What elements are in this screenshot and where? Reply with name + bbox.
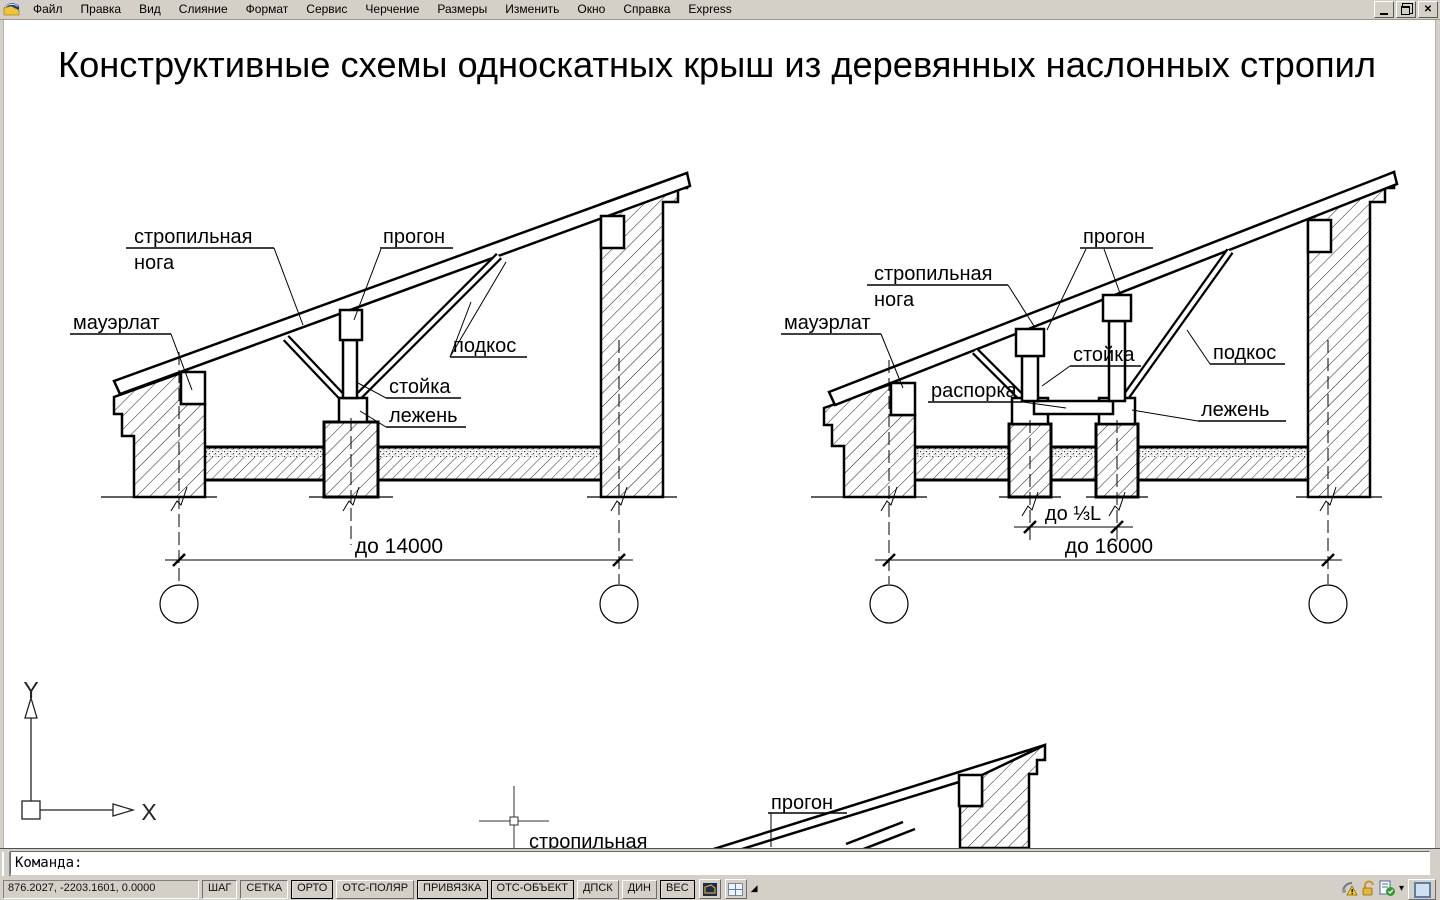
slab-insulation (205, 448, 601, 457)
label-post: стойка (389, 376, 451, 398)
clean-screen-button[interactable] (1408, 879, 1436, 900)
menu-view[interactable]: Вид (130, 0, 170, 19)
toggle-osnap[interactable]: ПРИВЯЗКА (417, 880, 487, 899)
label-purlin: прогон (383, 226, 445, 248)
label-purlin: прогон (1083, 226, 1145, 248)
restore-button[interactable] (1396, 1, 1416, 18)
coordinate-display[interactable]: 876.2027, -2203.1601, 0.0000 (3, 880, 199, 899)
grid-bubble (600, 585, 638, 623)
post (343, 340, 357, 398)
label-rafter-1: стропильная (874, 263, 993, 285)
menu-tools[interactable]: Сервис (297, 0, 356, 19)
post-spacing-dimension: до ⅓L (1014, 503, 1133, 533)
label-rafter-2: нога (134, 252, 175, 274)
toggle-dyn[interactable]: ДИН (622, 880, 657, 899)
spacer-bar (1034, 401, 1113, 414)
communication-warning-icon[interactable] (1341, 880, 1358, 897)
purlin-block (340, 310, 362, 340)
label-strut: подкос (453, 335, 516, 357)
status-bar: 876.2027, -2203.1601, 0.0000 ШАГ СЕТКА О… (0, 878, 1440, 900)
toggle-ortho[interactable]: ОРТО (291, 880, 333, 899)
span-dimension: до 14000 (165, 535, 633, 566)
toggle-snap[interactable]: ШАГ (202, 880, 237, 899)
label-purlin: прогон (771, 792, 833, 814)
status-tray: ▾ (1341, 880, 1404, 897)
ucs-icon: Y X (22, 677, 157, 825)
drawing-canvas[interactable]: Конструктивные схемы односкатных крыш из… (3, 20, 1436, 848)
label-mauerlat: мауэрлат (73, 312, 160, 334)
purlin-block-right (1103, 295, 1131, 321)
layout-button[interactable] (725, 879, 747, 899)
restore-icon (1401, 6, 1410, 15)
menu-help[interactable]: Справка (614, 0, 679, 19)
label-sill: лежень (1201, 399, 1270, 421)
right-diagram: до ⅓L до 16000 прогон стропильная нога (781, 172, 1397, 623)
menu-express[interactable]: Express (679, 0, 740, 19)
label-sill: лежень (389, 405, 458, 427)
label-rafter-2: нога (874, 289, 915, 311)
label-spacer: распорка (931, 380, 1018, 402)
command-window: Команда: (0, 848, 1440, 879)
label-post: стойка (1073, 344, 1135, 366)
menu-draw[interactable]: Черчение (356, 0, 428, 19)
ucs-y-label: Y (23, 677, 38, 703)
toggle-lwt[interactable]: ВЕС (660, 880, 695, 899)
label-mauerlat: мауэрлат (784, 312, 871, 334)
mauerlat-block (181, 372, 205, 404)
toggle-otrack[interactable]: ОТС-ОБЪЕКТ (491, 880, 574, 899)
wall-purlin-block (601, 216, 624, 248)
toggle-grid[interactable]: СЕТКА (240, 880, 288, 899)
drawing-svg: Конструктивные схемы односкатных крыш из… (4, 20, 1435, 848)
ucs-x-label: X (141, 799, 156, 825)
left-diagram: до 14000 стропильная нога прогон мауэрла… (70, 173, 690, 623)
close-icon: ✕ (1424, 5, 1432, 15)
menu-bar: Файл Правка Вид Слияние Формат Сервис Че… (0, 0, 1440, 20)
purlin-block (959, 775, 982, 806)
layout-icon (728, 883, 743, 896)
grid-bubble (870, 585, 908, 623)
toolbar-overflow-arrow[interactable]: ◢ (751, 883, 758, 894)
label-strut: подкос (1213, 342, 1276, 364)
menu-merge[interactable]: Слияние (170, 0, 237, 19)
wall-purlin-block (1308, 220, 1331, 252)
toggle-polar[interactable]: ОТС-ПОЛЯР (336, 880, 414, 899)
slab-body (205, 457, 601, 480)
label-rafter-1: стропильная (134, 226, 253, 248)
menu-dimension[interactable]: Размеры (428, 0, 496, 19)
minimize-icon (1380, 13, 1388, 15)
minimize-button[interactable] (1374, 1, 1394, 18)
clean-screen-icon (1414, 882, 1431, 898)
command-input[interactable]: Команда: (10, 851, 1430, 875)
span-dimension: до 16000 (875, 535, 1342, 566)
break-symbols (171, 487, 627, 511)
page-title: Конструктивные схемы односкатных крыш из… (58, 44, 1376, 85)
model-space-icon (703, 883, 717, 896)
tray-dropdown-arrow[interactable]: ▾ (1399, 883, 1404, 894)
third-diagram: прогон стропильная (529, 745, 1045, 848)
app-icon (3, 2, 20, 17)
menu-modify[interactable]: Изменить (496, 0, 568, 19)
span-dim-text: до 14000 (355, 535, 443, 558)
menu-edit[interactable]: Правка (72, 0, 131, 19)
toggle-ducs[interactable]: ДПСК (577, 880, 619, 899)
standards-check-icon[interactable] (1379, 880, 1396, 897)
sill-block (339, 398, 367, 422)
post-spacing-dim-text: до ⅓L (1045, 503, 1101, 525)
grid-bubble (1309, 585, 1347, 623)
window-controls: ✕ (1374, 1, 1438, 18)
purlin-block-left (1016, 329, 1044, 356)
close-button[interactable]: ✕ (1418, 1, 1438, 18)
label-rafter-partial: стропильная (529, 831, 648, 848)
open-padlock-icon[interactable] (1361, 880, 1376, 897)
post-left (1022, 356, 1038, 401)
menu-window[interactable]: Окно (568, 0, 614, 19)
grid-bubble (160, 585, 198, 623)
span-dim-text: до 16000 (1065, 535, 1153, 558)
menu-format[interactable]: Формат (237, 0, 298, 19)
menu-file[interactable]: Файл (24, 0, 72, 19)
model-space-button[interactable] (699, 879, 721, 899)
